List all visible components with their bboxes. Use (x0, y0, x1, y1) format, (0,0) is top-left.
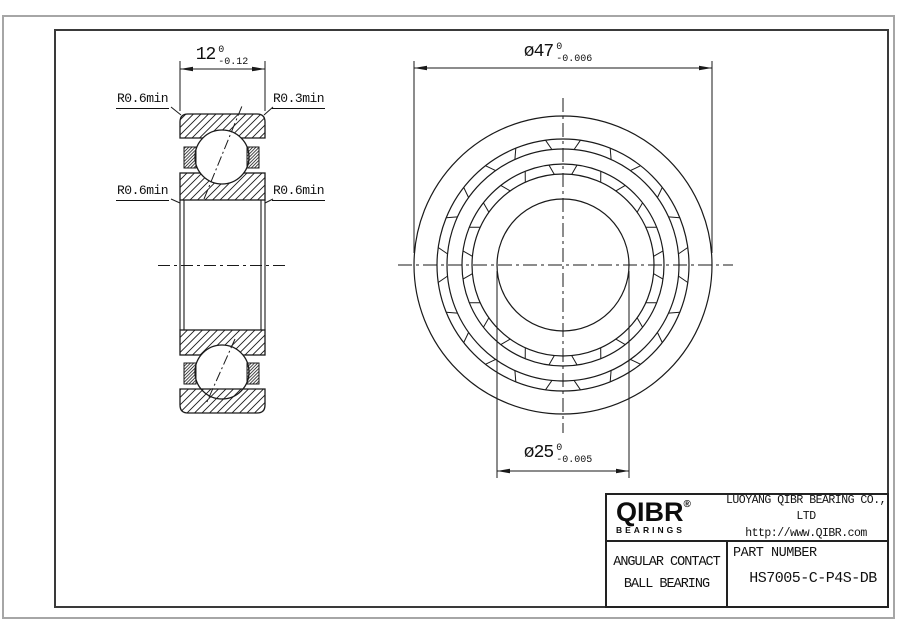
product-type: ANGULAR CONTACT BALL BEARING (607, 542, 728, 606)
cage-bottom-right (247, 363, 259, 384)
cage-top-right (247, 147, 259, 168)
dim-width-value: 12 (196, 46, 216, 64)
brand-logo: QIBR® BEARINGS (607, 500, 725, 535)
dim-od-value: 47 (534, 42, 554, 62)
dim-width-text: 12 0 -0.12 (196, 46, 249, 68)
brand-name: QIBR (616, 497, 684, 527)
company-info: LUOYANG QIBR BEARING CO., LTD http://www… (725, 493, 887, 543)
cage-top-left (184, 147, 196, 168)
front-centerlines (398, 98, 733, 433)
diameter-symbol: ø (524, 443, 534, 463)
cage-bottom-left (184, 363, 196, 384)
dim-width-tolerance: 0 -0.12 (218, 45, 248, 68)
ball-top (195, 130, 249, 184)
product-type-line1: ANGULAR CONTACT (607, 552, 726, 574)
dim-od-text: ø47 0 -0.006 (524, 43, 592, 65)
dim-bore-value: 25 (534, 443, 554, 463)
radius-label-bottom-right: R0.6min (272, 184, 325, 201)
part-number-label: PART NUMBER (733, 546, 885, 561)
brand-subtitle: BEARINGS (616, 525, 725, 535)
section-view (158, 61, 287, 413)
company-name: LUOYANG QIBR BEARING CO., LTD (725, 493, 887, 526)
outer-ring-bottom-section (180, 389, 265, 413)
title-block-header-row: QIBR® BEARINGS LUOYANG QIBR BEARING CO.,… (607, 495, 887, 542)
dim-bore-text: ø25 0 -0.005 (524, 444, 592, 466)
title-block-detail-row: ANGULAR CONTACT BALL BEARING PART NUMBER… (607, 542, 887, 606)
part-number-value: HS7005-C-P4S-DB (733, 570, 885, 587)
dim-width-lines (180, 61, 265, 111)
drawing-sheet: 12 0 -0.12 ø47 0 -0.006 ø25 0 -0.005 R0.… (0, 0, 900, 636)
front-view (398, 61, 733, 478)
company-website: http://www.QIBR.com (725, 526, 887, 543)
registered-mark: ® (684, 499, 691, 510)
diameter-symbol: ø (524, 42, 534, 62)
dim-od-tolerance: 0 -0.006 (556, 42, 592, 65)
radius-label-top-right: R0.3min (272, 92, 325, 109)
radius-label-bottom-left: R0.6min (116, 184, 169, 201)
part-number-cell: PART NUMBER HS7005-C-P4S-DB (728, 542, 887, 606)
radius-label-top-left: R0.6min (116, 92, 169, 109)
title-block: QIBR® BEARINGS LUOYANG QIBR BEARING CO.,… (605, 493, 889, 608)
dim-bore-tolerance: 0 -0.005 (556, 443, 592, 466)
product-type-line2: BALL BEARING (607, 574, 726, 596)
